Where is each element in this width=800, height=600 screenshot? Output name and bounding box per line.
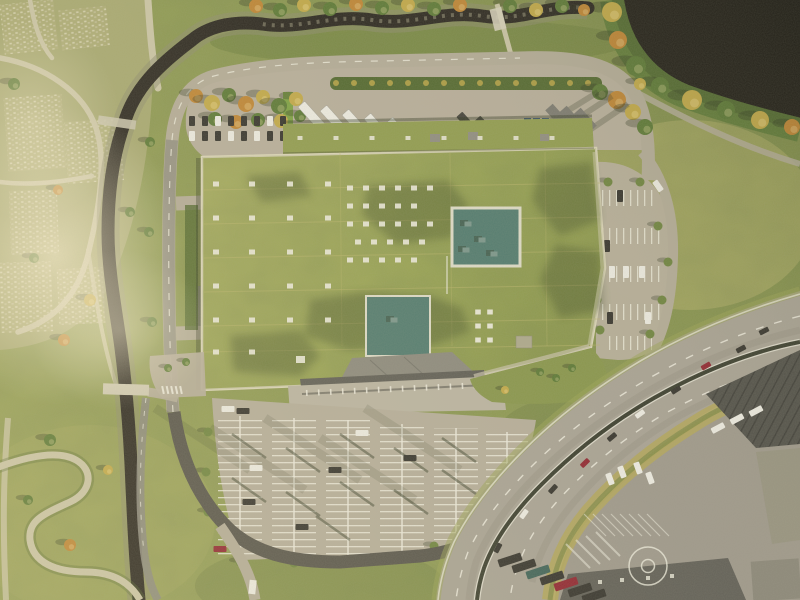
atmosphere <box>0 0 800 600</box>
aerial-photo-stage: Aerial photograph: logistics building wi… <box>0 0 800 600</box>
film-grain <box>0 0 800 600</box>
aerial-photo <box>0 0 800 600</box>
